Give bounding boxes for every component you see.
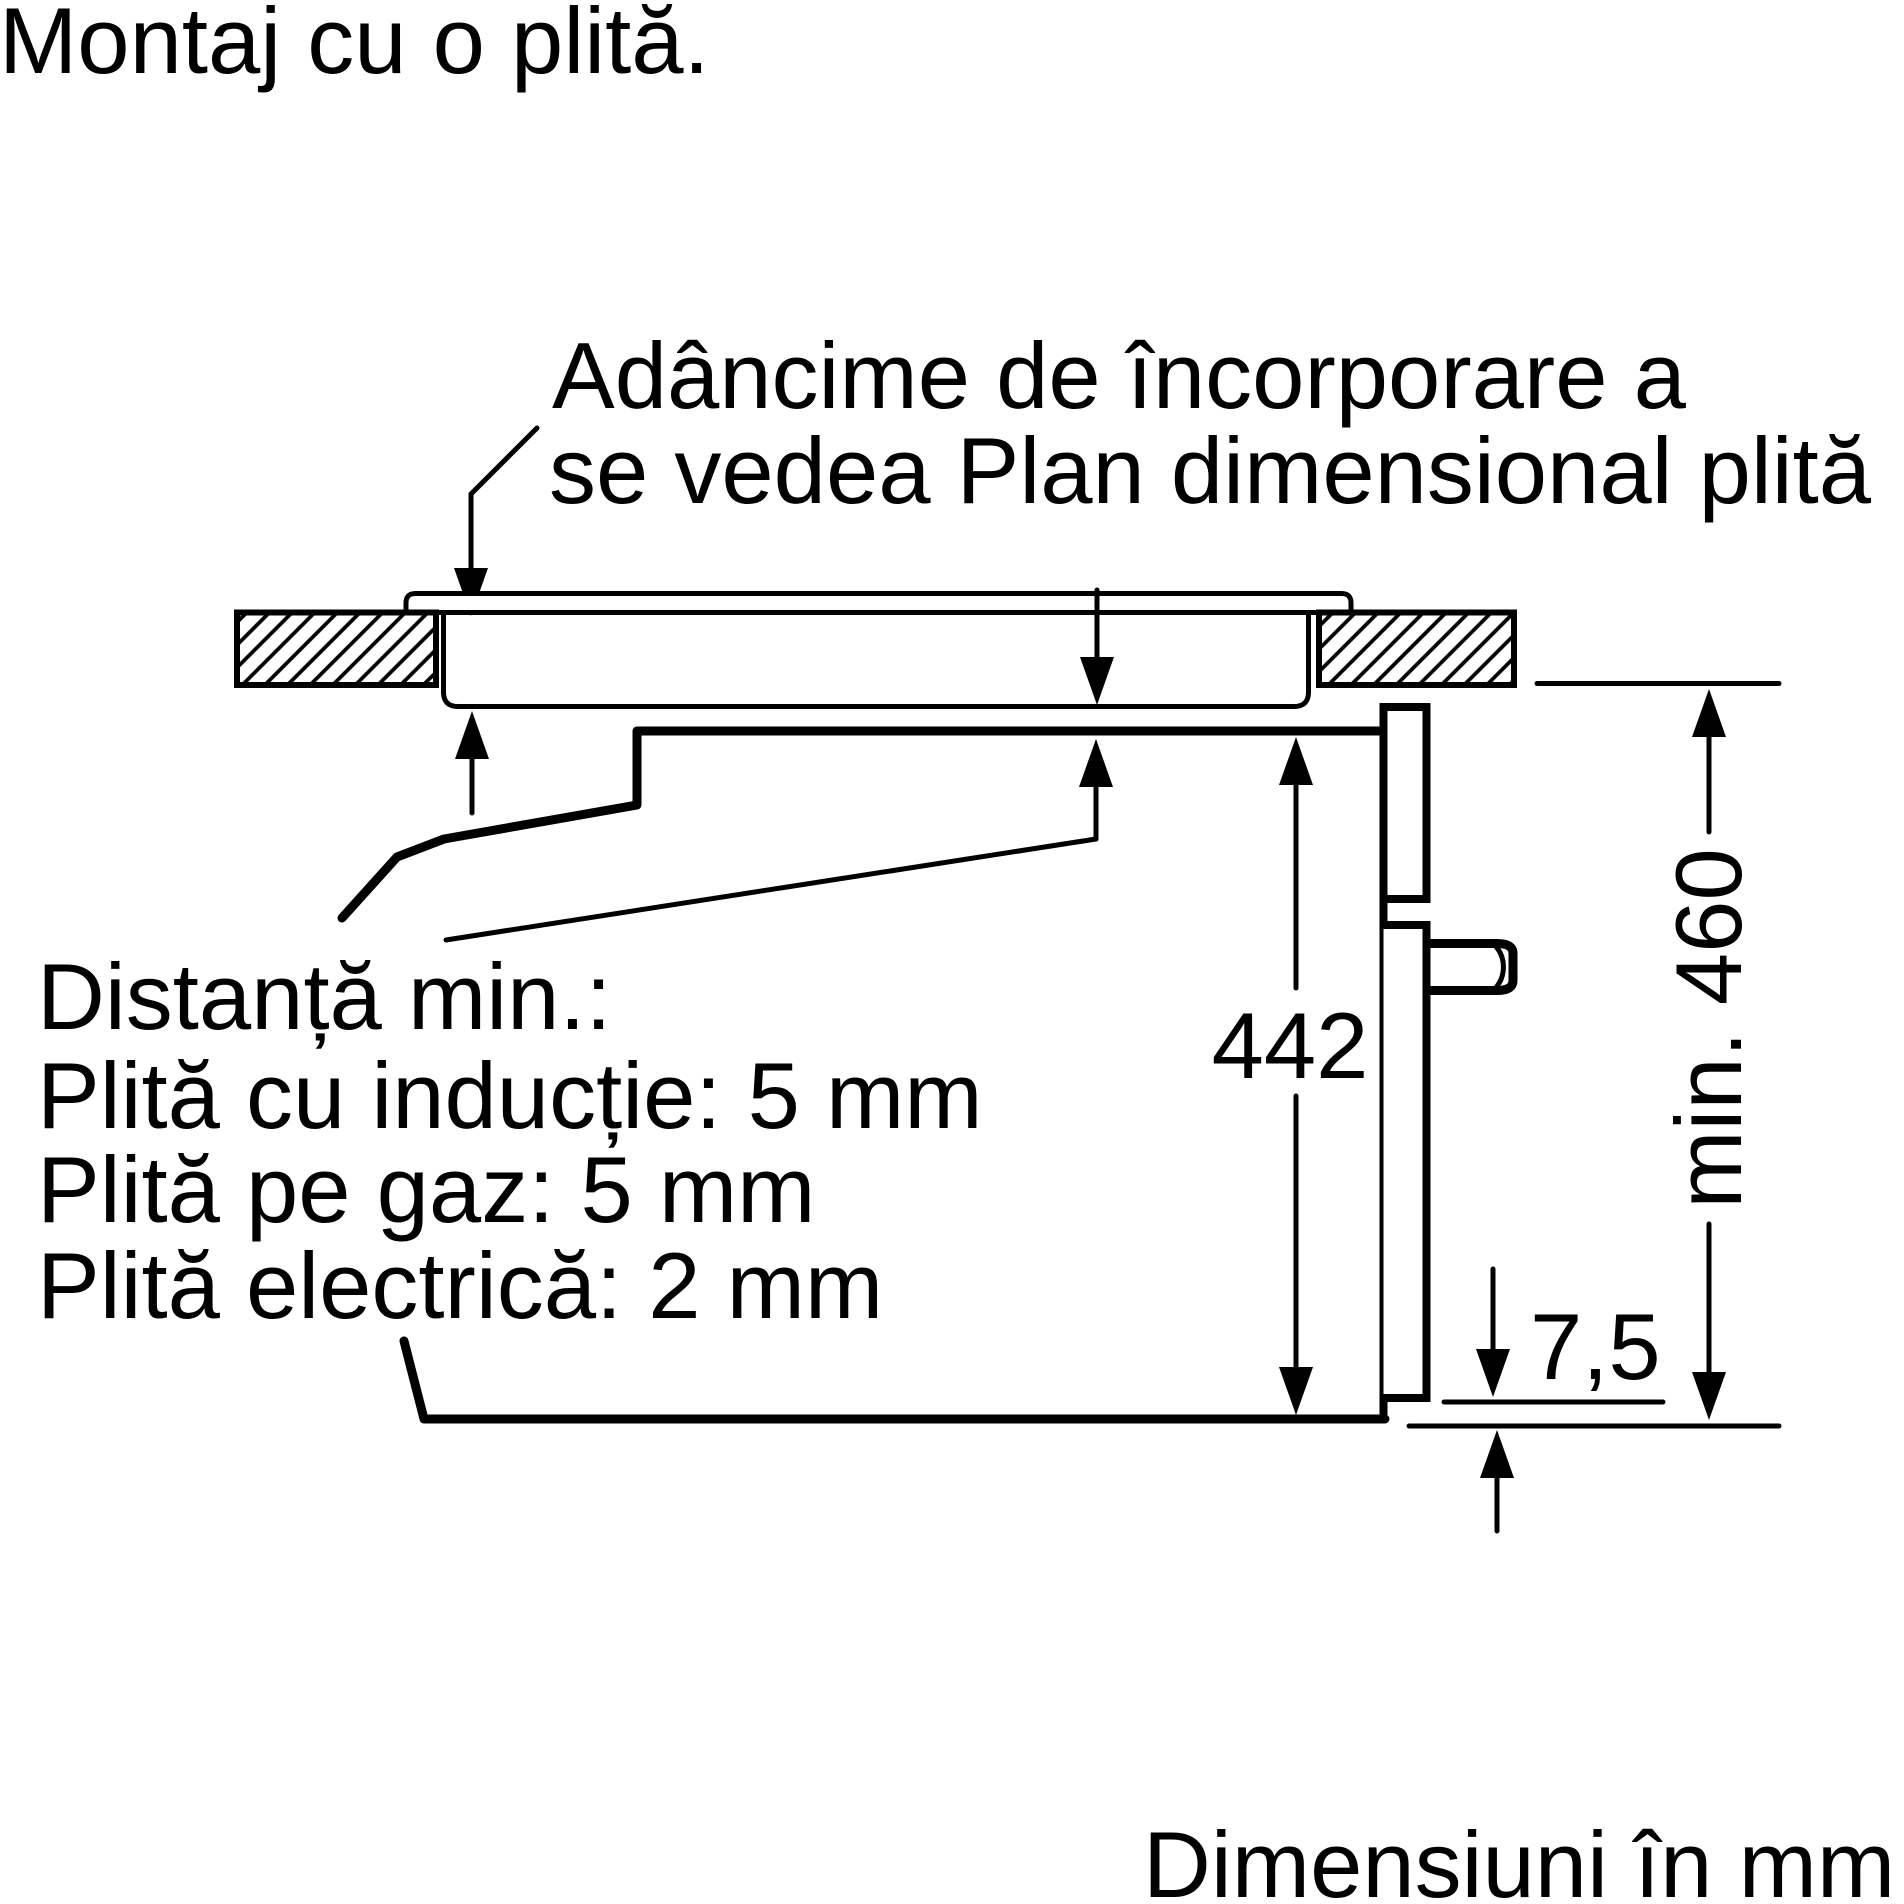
svg-text:7,5: 7,5 — [1530, 1294, 1661, 1399]
svg-text:Dimensiuni în mm: Dimensiuni în mm — [1143, 1812, 1895, 1904]
svg-text:se vedea Plan dimensional plit: se vedea Plan dimensional plită — [549, 418, 1872, 523]
svg-text:Montaj cu o plită.: Montaj cu o plită. — [0, 0, 710, 93]
svg-text:Plită pe gaz: 5 mm: Plită pe gaz: 5 mm — [37, 1137, 815, 1242]
svg-text:min. 460: min. 460 — [1656, 848, 1761, 1209]
svg-text:Plită electrică: 2 mm: Plită electrică: 2 mm — [37, 1233, 883, 1338]
svg-text:442: 442 — [1212, 993, 1369, 1098]
svg-text:Plită cu inducție: 5 mm: Plită cu inducție: 5 mm — [37, 1043, 983, 1148]
svg-text:Adâncime de încorporare a: Adâncime de încorporare a — [552, 323, 1687, 428]
svg-text:Distanță min.:: Distanță min.: — [37, 944, 612, 1049]
